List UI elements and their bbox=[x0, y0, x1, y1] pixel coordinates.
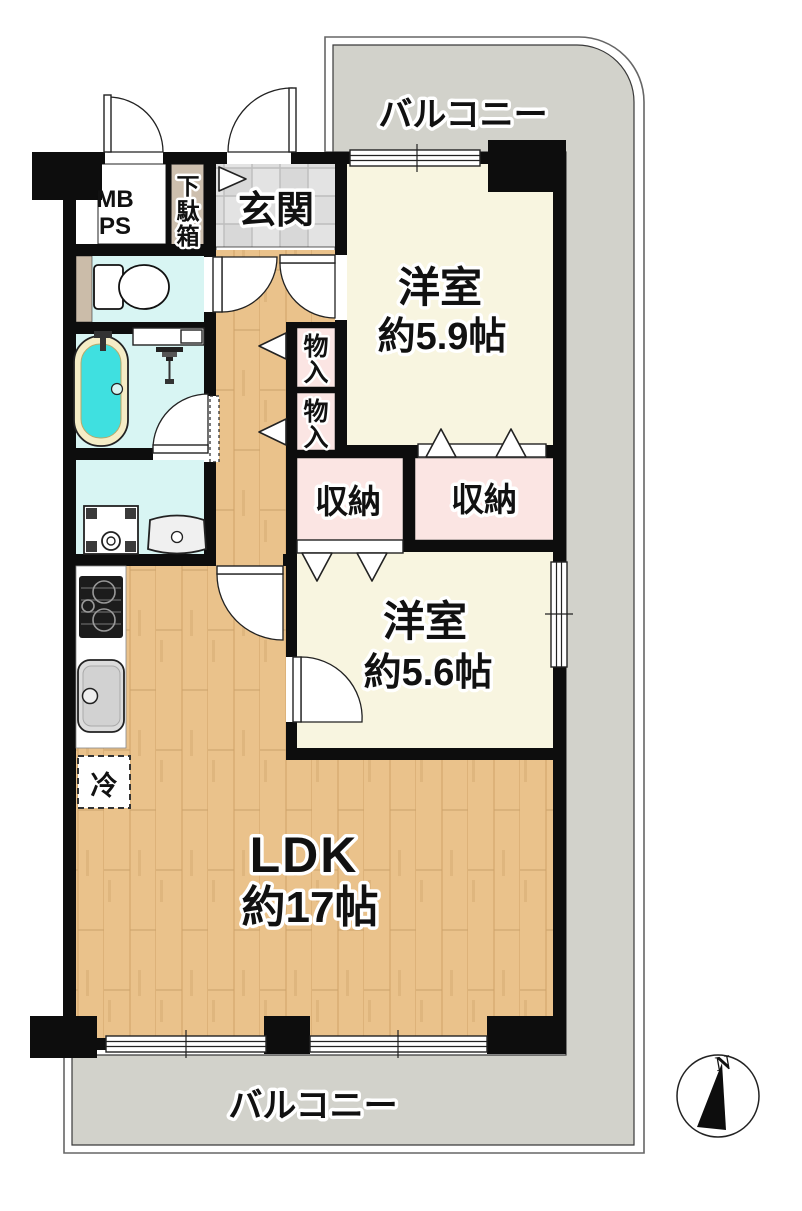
toilet-shelf bbox=[76, 256, 92, 322]
closet-right-label: 収納 bbox=[451, 481, 517, 518]
svg-text:洋室: 洋室 bbox=[383, 598, 467, 645]
svg-text:入: 入 bbox=[303, 359, 328, 387]
storage-bottom-label: 物 入 bbox=[303, 398, 328, 452]
svg-text:洋室: 洋室 bbox=[398, 264, 482, 311]
svg-text:下: 下 bbox=[177, 173, 200, 199]
hallway-floor bbox=[216, 322, 286, 566]
closet-left-doors bbox=[297, 540, 403, 553]
ldk-door bbox=[217, 566, 283, 574]
entrance-door-swing bbox=[228, 88, 292, 152]
svg-text:物: 物 bbox=[303, 333, 328, 361]
svg-text:LDK: LDK bbox=[250, 827, 359, 883]
floor-plan-page: バルコニー バルコニー 玄関 MB PS 下 駄 箱 洋室 約5.9帖 物 入 … bbox=[0, 0, 802, 1211]
svg-text:物: 物 bbox=[303, 398, 328, 426]
svg-text:入: 入 bbox=[303, 424, 328, 452]
compass: N bbox=[677, 1050, 759, 1137]
washing-machine bbox=[84, 506, 138, 554]
room59-door bbox=[280, 255, 335, 263]
mbps-label: MB PS bbox=[96, 186, 133, 240]
svg-text:約5.6帖: 約5.6帖 bbox=[364, 652, 493, 694]
bath-counter bbox=[133, 328, 204, 345]
floor-plan-drawing: バルコニー バルコニー 玄関 MB PS 下 駄 箱 洋室 約5.9帖 物 入 … bbox=[0, 0, 802, 1211]
compass-north-label: N bbox=[713, 1050, 732, 1076]
bathtub bbox=[74, 331, 128, 446]
fridge-label: 冷 bbox=[91, 771, 118, 801]
ldk-label: LDK 約17帖 bbox=[242, 827, 379, 932]
balcony-top-label: バルコニー bbox=[378, 96, 547, 134]
svg-text:箱: 箱 bbox=[177, 223, 200, 249]
washroom-sliding-door bbox=[210, 396, 219, 462]
entrance-door bbox=[289, 88, 296, 152]
bath-door bbox=[153, 445, 208, 453]
kitchen-sink bbox=[78, 660, 124, 732]
mbps-entry-door-swing bbox=[108, 97, 163, 152]
svg-text:MB: MB bbox=[96, 186, 133, 213]
toilet-fixture bbox=[94, 265, 169, 309]
closet-left-label: 収納 bbox=[315, 483, 381, 520]
shoe-cabinet-label: 下 駄 箱 bbox=[177, 173, 200, 249]
storage-top-label: 物 入 bbox=[303, 333, 328, 387]
entrance-label: 玄関 bbox=[238, 190, 314, 232]
washbasin bbox=[148, 516, 206, 554]
room56-door bbox=[293, 657, 301, 722]
svg-text:駄: 駄 bbox=[177, 198, 200, 224]
svg-text:約17帖: 約17帖 bbox=[242, 883, 379, 932]
stove bbox=[79, 576, 123, 638]
svg-text:約5.9帖: 約5.9帖 bbox=[378, 316, 507, 358]
balcony-bottom-label: バルコニー bbox=[228, 1087, 397, 1125]
svg-text:PS: PS bbox=[99, 213, 131, 240]
mbps-entry-door bbox=[104, 95, 111, 152]
toilet-door bbox=[213, 257, 222, 312]
